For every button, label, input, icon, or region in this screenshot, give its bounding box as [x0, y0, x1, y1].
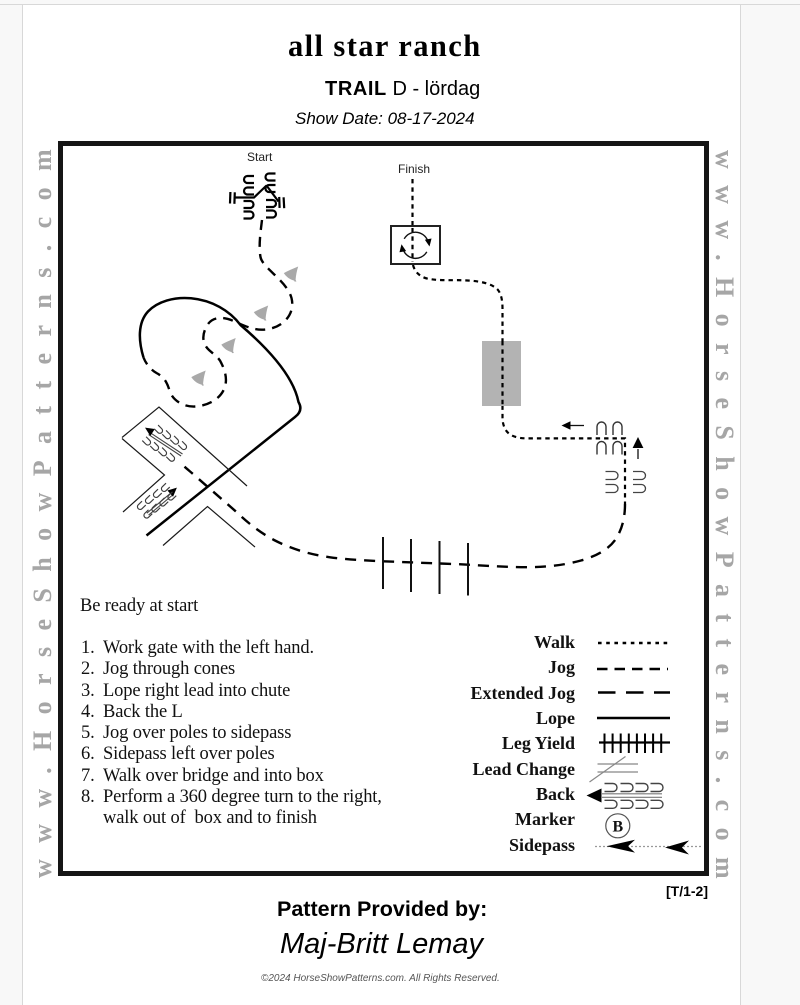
svg-text:B: B: [612, 819, 623, 836]
